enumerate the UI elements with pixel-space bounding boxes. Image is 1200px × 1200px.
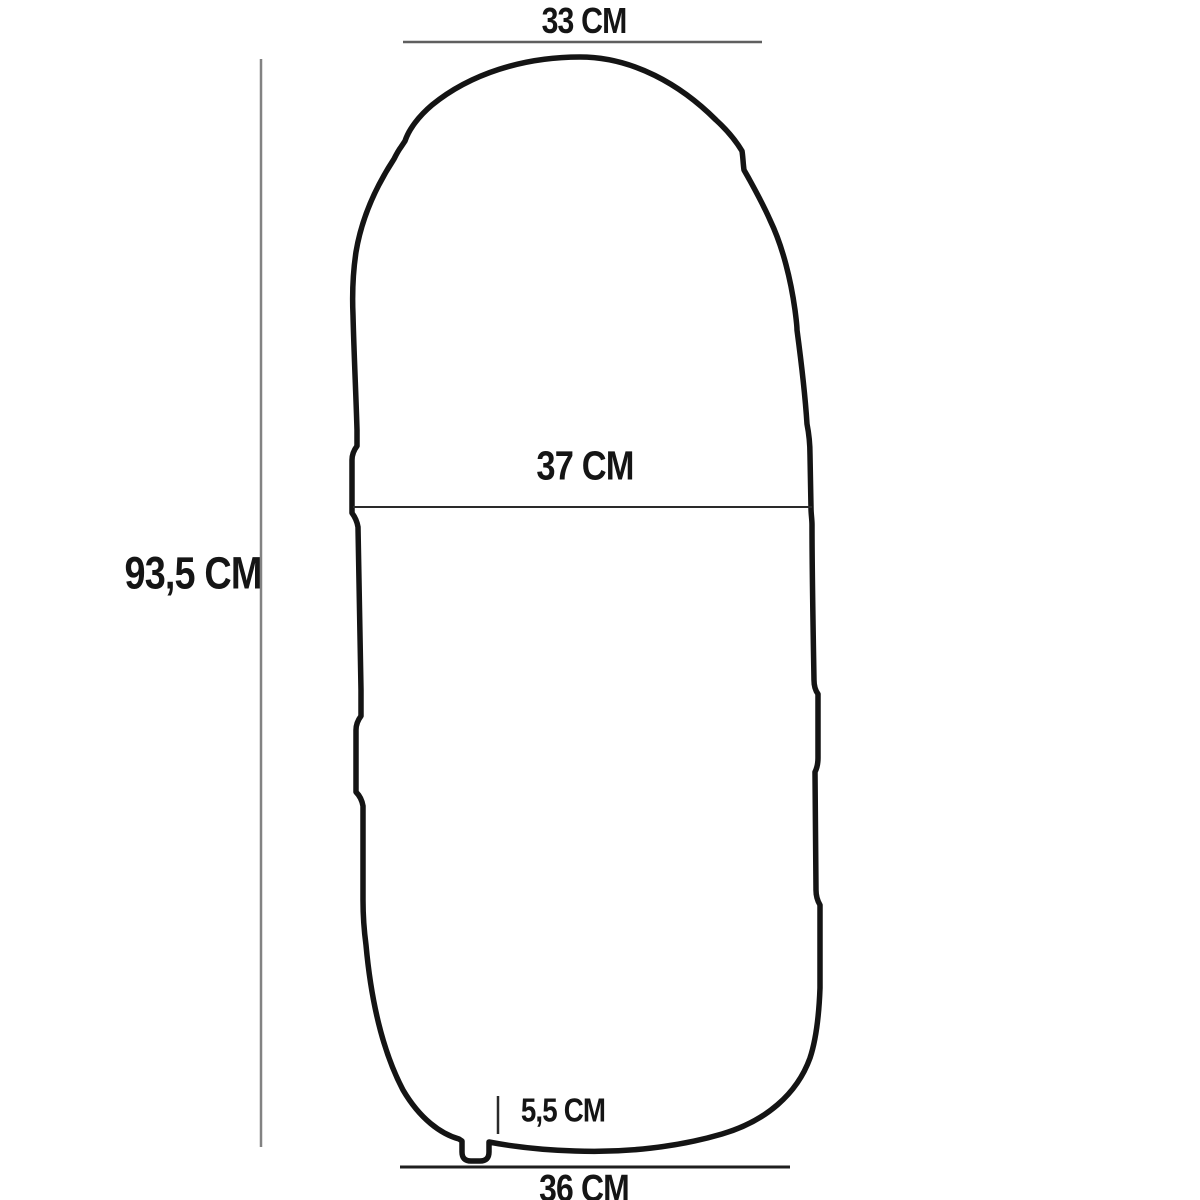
top-width-label: 33 CM	[542, 3, 627, 39]
diagram-canvas: 33 CM 37 CM 93,5 CM 5,5 CM 36 CM	[0, 0, 1200, 1200]
dimension-drawing	[0, 0, 1200, 1200]
middle-width-label: 37 CM	[536, 446, 633, 487]
valve-height-label: 5,5 CM	[521, 1094, 605, 1127]
bottom-width-label: 36 CM	[539, 1170, 629, 1200]
total-height-label: 93,5 CM	[125, 551, 262, 596]
sleeping-bag-outline	[352, 57, 820, 1161]
